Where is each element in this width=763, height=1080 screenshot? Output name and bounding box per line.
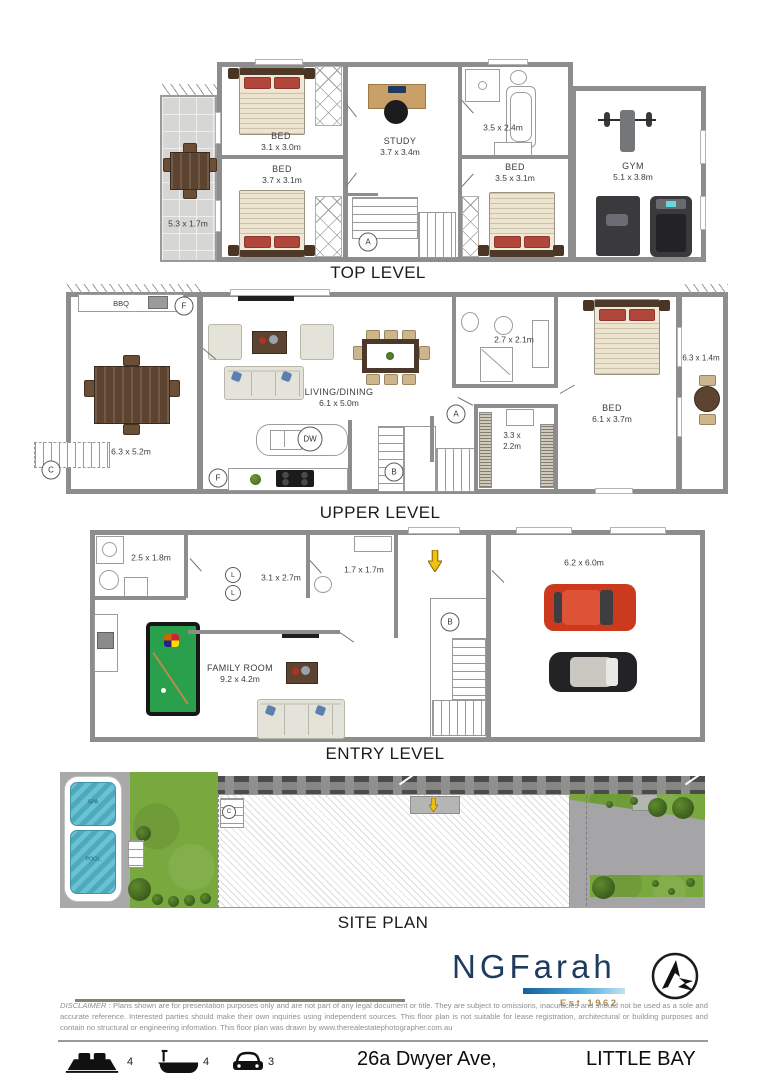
bed2-label: BED3.7 x 3.1m — [262, 163, 302, 187]
bed-icon — [64, 1050, 120, 1074]
wall — [430, 416, 434, 462]
window — [700, 196, 706, 230]
terrace-dims: 6.3 x 5.2m — [111, 446, 151, 457]
wall — [462, 155, 571, 159]
gym-bench — [620, 110, 635, 152]
washing-machine — [124, 577, 148, 597]
nightstand — [659, 300, 670, 311]
wall — [474, 404, 478, 494]
shrub — [152, 894, 163, 905]
family-room-label: FAMILY ROOM9.2 x 4.2m — [207, 662, 273, 686]
stairs — [378, 426, 404, 492]
top-level-title: TOP LEVEL — [330, 263, 426, 283]
study-label: STUDY3.7 x 3.4m — [380, 135, 420, 159]
shrub — [630, 797, 638, 805]
nightstand — [553, 245, 564, 256]
upper-bath-dims: 2.7 x 2.1m — [494, 334, 534, 345]
cue-ball — [161, 688, 166, 693]
window — [215, 112, 221, 144]
basin — [494, 316, 513, 335]
table-decor — [269, 335, 278, 344]
wall — [94, 596, 186, 600]
pool-label: POOL — [85, 856, 100, 863]
terrace-railing — [66, 284, 202, 294]
vanity — [532, 320, 549, 368]
shrub — [686, 878, 695, 887]
bed3-label: BED3.5 x 3.1m — [495, 161, 535, 185]
master-bed — [594, 299, 660, 375]
bath-count: 4 — [203, 1056, 209, 1068]
wall — [452, 292, 456, 388]
terrace-chair — [169, 380, 180, 397]
site-plan-title: SITE PLAN — [338, 913, 429, 933]
bath-icon — [156, 1048, 200, 1075]
house-footprint — [218, 794, 570, 908]
stair-marker-a: A — [447, 405, 466, 424]
wall — [474, 404, 558, 408]
entry-arrow-icon — [429, 798, 438, 812]
window — [595, 488, 633, 494]
spa-label: SPA — [88, 799, 99, 806]
laundry-basin — [102, 542, 117, 557]
top-level-plan: 5.3 x 1.7m — [0, 0, 763, 285]
wardrobe-rack — [540, 424, 554, 488]
terrace-chair — [123, 355, 140, 366]
shrub — [168, 896, 179, 907]
wall — [676, 292, 682, 494]
window — [700, 130, 706, 164]
window — [215, 200, 221, 232]
entry-arrow-icon — [428, 550, 442, 572]
stair-marker-c: C — [42, 461, 61, 480]
shrub — [136, 826, 151, 841]
suburb: LITTLE BAY — [586, 1048, 696, 1071]
garage-door — [610, 527, 666, 534]
sink-divider — [284, 431, 285, 447]
upper-level-title: UPPER LEVEL — [320, 503, 441, 523]
vanity — [354, 536, 392, 552]
double-bed — [489, 192, 555, 258]
robe-dims: 3.3 x2.2m — [503, 431, 521, 453]
shrub — [200, 893, 211, 904]
garage-dims: 6.2 x 6.0m — [564, 557, 604, 568]
wall — [554, 404, 558, 494]
stairs — [452, 638, 486, 700]
bathtub-inner — [510, 92, 532, 142]
wall — [452, 384, 558, 388]
multi-gym — [596, 196, 640, 256]
fridge-marker-2: F — [209, 469, 228, 488]
balcony-chair — [699, 375, 716, 386]
linen-marker-2: L — [225, 585, 241, 601]
laundry-tub — [99, 570, 119, 590]
nightstand — [228, 245, 239, 256]
dresser — [506, 409, 534, 426]
nightstand — [478, 245, 489, 256]
balcony-table — [170, 152, 210, 190]
entry-level-plan: 2.5 x 1.8m 3.1 x 2.7m L L 1.7 x 1.7m FAM… — [0, 530, 763, 775]
upper-level-plan: BBQ F 6.3 x 5.2m C LIVING/DINING6.1 x 5.… — [0, 285, 763, 530]
storage-box — [97, 632, 114, 649]
balcony-dims: 5.3 x 1.7m — [168, 218, 208, 229]
dining-chair — [384, 374, 398, 385]
stairs — [432, 700, 486, 736]
shrub — [668, 888, 675, 895]
balcony-chair — [183, 189, 197, 199]
vanity — [494, 142, 532, 156]
floor-plan-sheet: 5.3 x 1.7m — [0, 0, 763, 1080]
gym-label: GYM5.1 x 3.8m — [613, 160, 653, 184]
double-bed — [239, 67, 305, 135]
wardrobe-rack — [479, 412, 492, 488]
shrub — [128, 878, 151, 901]
street-boundary — [218, 776, 705, 794]
bbq-bench — [78, 294, 184, 312]
balcony-table — [694, 386, 720, 412]
fridge-marker: F — [175, 297, 194, 316]
wall — [184, 534, 188, 598]
balcony-railing — [162, 84, 217, 95]
car-count: 3 — [268, 1056, 274, 1068]
treadmill-screen — [666, 201, 676, 207]
dining-chair — [402, 374, 416, 385]
stair-marker-b: B — [385, 463, 404, 482]
stairs — [436, 448, 476, 492]
entry-bath-dims: 1.7 x 1.7m — [344, 564, 384, 575]
terrace-table — [94, 366, 170, 424]
pool-ball-rack — [164, 634, 179, 647]
window — [677, 327, 682, 367]
wall — [222, 155, 343, 159]
wall — [486, 534, 491, 738]
shrub — [606, 801, 613, 808]
terrace-chair — [123, 424, 140, 435]
table-centrepiece — [386, 352, 394, 360]
window — [488, 59, 528, 65]
garden-steps — [128, 840, 144, 868]
toilet — [461, 312, 479, 332]
nightstand — [583, 300, 594, 311]
wall — [343, 66, 348, 258]
cooktop — [276, 470, 314, 487]
upper-balcony-dims: 6.3 x 1.4m — [682, 354, 719, 365]
logo-underline-bar — [523, 988, 625, 994]
master-bed-label: BED6.1 x 3.7m — [592, 402, 632, 426]
wardrobe — [315, 66, 342, 126]
bbq-label: BBQ — [113, 299, 129, 309]
shrub — [652, 880, 659, 887]
wall — [197, 292, 203, 494]
dining-chair — [366, 374, 380, 385]
wall — [348, 420, 352, 494]
car-icon — [230, 1050, 266, 1074]
garage-door — [516, 527, 572, 534]
table-decor — [259, 337, 266, 344]
laundry-dims: 2.5 x 1.8m — [131, 552, 171, 563]
wall — [554, 292, 558, 388]
bbq-unit — [148, 296, 168, 309]
nightstand — [304, 245, 315, 256]
footer-bar: 4 4 3 26a Dwyer Ave, LITTLE BAY — [0, 1044, 763, 1080]
nightstand — [228, 68, 239, 79]
table-decor — [301, 666, 310, 675]
dishwasher-marker: DW — [298, 427, 323, 452]
site-plan: SPA POOL C SITE PLAN — [0, 770, 763, 940]
stair-marker-c: C — [222, 805, 236, 819]
shower-drain — [478, 81, 487, 90]
living-label: LIVING/DINING6.1 x 5.0m — [305, 386, 374, 410]
wall — [458, 66, 462, 258]
stair-marker-b: B — [441, 613, 460, 632]
wardrobe — [462, 196, 479, 257]
stairs — [352, 197, 418, 239]
wall — [188, 630, 340, 634]
armchair — [208, 324, 242, 360]
toilet — [314, 576, 332, 593]
wall — [348, 193, 378, 196]
car-black-windshield — [606, 658, 618, 686]
table-decor — [292, 668, 299, 675]
bed-count: 4 — [127, 1056, 133, 1068]
nightstand — [304, 68, 315, 79]
bed1-label: BED3.1 x 3.0m — [261, 130, 301, 154]
balcony-chair — [699, 414, 716, 425]
linen-marker-1: L — [225, 567, 241, 583]
agency-logo-text: NGFarah — [452, 948, 616, 986]
car-red-roof — [562, 590, 602, 625]
car-red-rear-window — [554, 592, 562, 623]
entry-level-title: ENTRY LEVEL — [325, 744, 444, 764]
wall — [306, 534, 310, 598]
multi-gym-seat — [606, 214, 628, 226]
toilet — [510, 70, 527, 85]
office-chair — [384, 100, 408, 124]
car-red-windshield — [600, 590, 613, 625]
stair-marker-a: A — [359, 233, 378, 252]
disclaimer-text: DISCLAIMER : Plans shown are for present… — [60, 1000, 708, 1033]
balcony-railing — [684, 284, 728, 294]
plant — [250, 474, 261, 485]
shrub — [184, 895, 195, 906]
disclaimer-rule-bottom — [58, 1040, 708, 1042]
wall — [394, 534, 398, 638]
wardrobe — [315, 196, 342, 257]
driveway-divider — [586, 796, 587, 906]
armchair — [300, 324, 334, 360]
treadmill-belt — [656, 214, 686, 252]
window — [677, 397, 682, 437]
window — [230, 289, 330, 296]
bath-label: 3.5 x 2.4m — [483, 122, 523, 133]
tree — [592, 876, 615, 899]
stairs — [418, 212, 456, 258]
hall-dims: 3.1 x 2.7m — [261, 572, 301, 583]
laptop — [388, 86, 406, 93]
window — [255, 59, 303, 65]
tree — [648, 798, 667, 817]
tree — [672, 797, 694, 819]
double-bed — [239, 190, 305, 258]
street-address: 26a Dwyer Ave, — [357, 1048, 497, 1071]
photographer-logo-icon — [650, 951, 700, 1001]
dining-chair — [419, 346, 430, 360]
entry-door-gap — [408, 527, 460, 534]
